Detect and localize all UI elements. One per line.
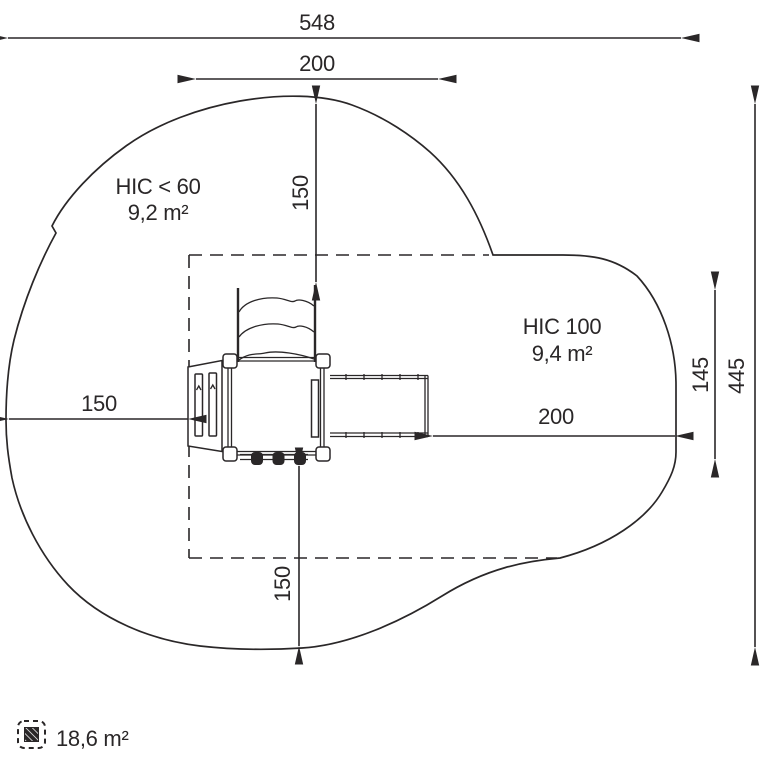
ramp-plan [330, 374, 428, 438]
drawing-svg: 548 200 150 150 150 200 145 445 HIC < 60… [0, 0, 768, 768]
ramp-top-edge [330, 376, 428, 379]
dim-label-upper-width: 200 [299, 51, 335, 76]
legend: 18,6 m² [18, 721, 128, 751]
dim-label-right-span: 145 [688, 357, 713, 393]
dimension-lower-clearance: 150 [270, 466, 299, 646]
climbing-slat-2 [209, 373, 217, 436]
dim-label-overall-width: 548 [299, 10, 335, 35]
dimension-right-clearance: 200 [433, 404, 675, 436]
dim-label-left-clearance: 150 [81, 391, 117, 416]
dim-label-lower-clearance: 150 [270, 566, 295, 602]
safety-zone-outline [6, 96, 676, 649]
zone-right-area: 9,4 m² [532, 341, 593, 366]
slide-section-1 [239, 298, 314, 312]
zone-left-name: HIC < 60 [115, 174, 200, 199]
climbing-slat-1 [195, 374, 203, 436]
tower-post-bottom-right [316, 447, 330, 461]
dimension-overall-width: 548 [8, 10, 681, 38]
dimension-overall-depth: 445 [724, 104, 755, 647]
slide-section-3 [239, 352, 314, 360]
dim-label-overall-depth: 445 [724, 358, 749, 394]
tower-post-bottom-left [223, 447, 237, 461]
zone-left-area: 9,2 m² [128, 200, 189, 225]
playground-safety-zone-drawing: 548 200 150 150 150 200 145 445 HIC < 60… [0, 0, 768, 768]
legend-total-area: 18,6 m² [56, 726, 128, 751]
tower-right-edge [321, 368, 325, 447]
ramp-bottom-edge [330, 433, 428, 437]
tower-post-top-right [316, 354, 330, 368]
dim-label-right-clearance: 200 [538, 404, 574, 429]
slide-plan [238, 285, 315, 362]
ramp-end-edge [425, 376, 428, 437]
tower-top-edge [237, 358, 316, 362]
tower-post-top-left [223, 354, 237, 368]
play-structure [188, 285, 428, 465]
tower-left-edge [228, 368, 232, 447]
dimension-left-clearance: 150 [9, 391, 188, 419]
safety-zone-boundary [6, 96, 676, 649]
zone-right-labels: HIC 100 9,4 m² [523, 314, 602, 366]
dim-label-upper-clearance: 150 [288, 175, 313, 211]
step-knob-2 [273, 452, 285, 465]
equipment-footprint-outline [189, 255, 557, 558]
tower-right-wall-panel [312, 380, 319, 437]
zone-right-name: HIC 100 [523, 314, 602, 339]
slide-section-2 [239, 324, 314, 337]
step-knob-1 [251, 452, 263, 465]
step-knob-3 [294, 452, 306, 465]
dimension-upper-width: 200 [196, 51, 438, 79]
dimension-right-span: 145 [688, 290, 715, 459]
legend-hatched-area-icon [25, 728, 39, 742]
tower-platform [223, 354, 330, 461]
entry-steps [240, 452, 308, 465]
climbing-panel [188, 361, 222, 452]
zone-left-labels: HIC < 60 9,2 m² [115, 174, 200, 225]
